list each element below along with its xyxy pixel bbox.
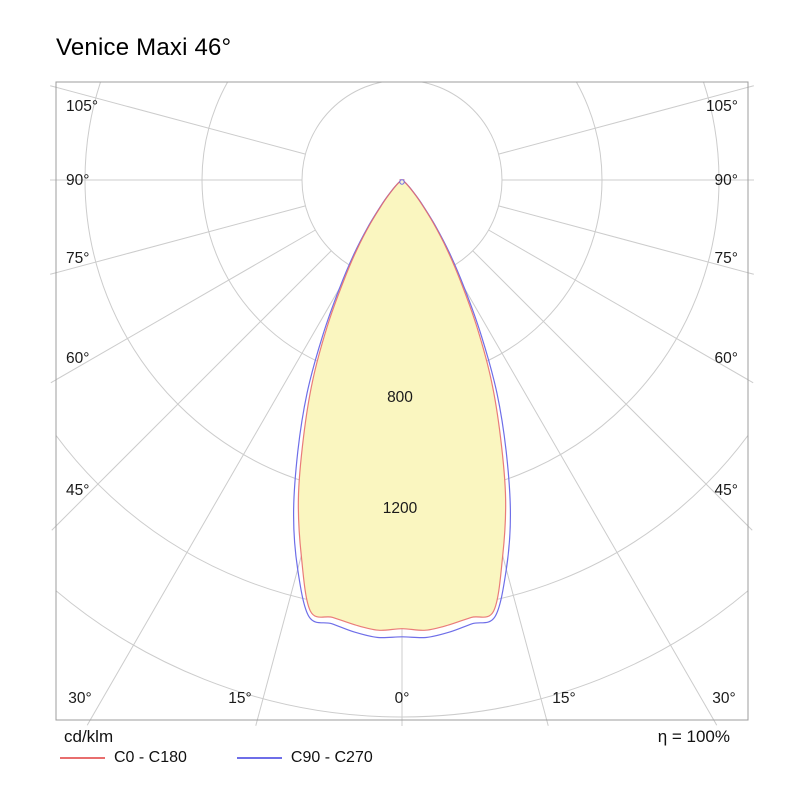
legend-line-blue <box>237 757 282 759</box>
ring-label: 800 <box>387 389 413 406</box>
grid-spoke <box>0 0 305 154</box>
grid-spoke <box>0 251 331 800</box>
grid-spoke-tick <box>87 720 90 725</box>
grid-spoke-tick <box>748 86 754 88</box>
ring-label: 1200 <box>383 500 418 517</box>
angle-label: 45° <box>715 482 738 499</box>
apex-marker <box>400 180 404 184</box>
angle-label: 45° <box>66 482 89 499</box>
grid-spoke-tick <box>52 526 56 530</box>
legend-label: C90 - C270 <box>291 749 373 767</box>
legend-line-red <box>60 757 105 759</box>
grid-spoke <box>0 230 315 680</box>
legend-item-c0-c180: C0 - C180 <box>60 749 187 767</box>
grid-spoke <box>499 0 800 154</box>
angle-label: 105° <box>706 98 738 115</box>
legend-label: C0 - C180 <box>114 749 187 767</box>
grid-spoke-tick <box>748 526 752 530</box>
angle-label: 75° <box>66 250 89 267</box>
angle-label: 90° <box>66 172 89 189</box>
polar-chart: 105°90°75°60°45°105°90°75°60°45°30°15°0°… <box>0 0 800 800</box>
angle-label: 15° <box>552 690 575 707</box>
grid-spoke-tick <box>51 380 56 383</box>
grid-spoke <box>473 251 800 800</box>
angle-label: 30° <box>712 690 735 707</box>
legend-item-c90-c270: C90 - C270 <box>237 749 373 767</box>
curve-legend: C0 - C180 C90 - C270 <box>60 749 373 767</box>
angle-label: 75° <box>715 250 738 267</box>
angle-label: 0° <box>395 690 410 707</box>
angle-label: 15° <box>228 690 251 707</box>
angle-label: 60° <box>66 350 89 367</box>
angle-label: 30° <box>68 690 91 707</box>
unit-label: cd/klm <box>64 727 113 747</box>
grid-spoke-tick <box>748 380 753 383</box>
grid-spoke-tick <box>748 273 754 275</box>
grid-spoke-tick <box>256 720 258 726</box>
grid-spoke-tick <box>714 720 717 725</box>
photometric-diagram-page: Venice Maxi 46° 105°90°75°60°45°105°90°7… <box>0 0 800 800</box>
grid-spoke-tick <box>50 86 56 88</box>
grid-spoke-tick <box>50 273 56 275</box>
grid-spoke-tick <box>547 720 549 726</box>
intensity-curves <box>294 180 511 638</box>
efficiency-label: η = 100% <box>658 727 730 747</box>
angle-label: 90° <box>715 172 738 189</box>
angle-label: 105° <box>66 98 98 115</box>
angle-label: 60° <box>715 350 738 367</box>
grid-spoke <box>489 230 800 680</box>
